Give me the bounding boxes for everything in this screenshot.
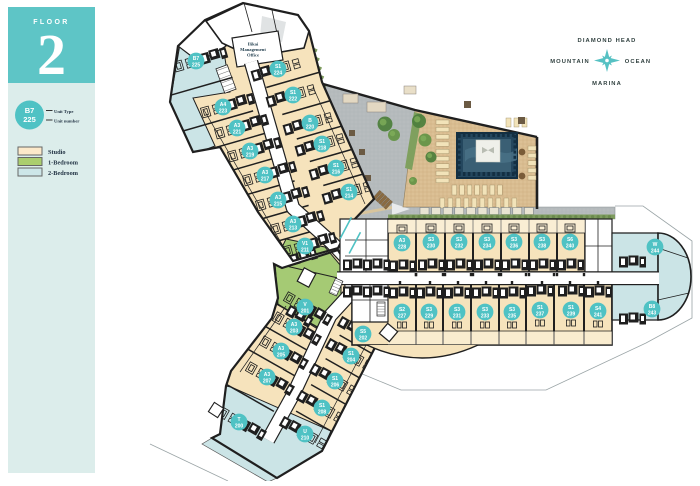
svg-text:210: 210 <box>301 435 310 441</box>
svg-text:S3: S3 <box>511 237 517 243</box>
svg-text:225: 225 <box>23 115 36 124</box>
svg-text:S2: S2 <box>399 307 405 313</box>
svg-text:B7: B7 <box>193 56 200 62</box>
svg-text:Management: Management <box>240 47 266 52</box>
svg-text:S3: S3 <box>428 237 434 243</box>
svg-text:S1: S1 <box>348 351 354 357</box>
svg-text:237: 237 <box>536 311 545 317</box>
svg-text:A3: A3 <box>275 195 282 201</box>
svg-text:S1: S1 <box>537 305 543 311</box>
svg-text:205: 205 <box>277 352 286 358</box>
svg-text:232: 232 <box>455 243 464 249</box>
svg-text:T: T <box>237 417 240 423</box>
svg-text:V1: V1 <box>302 241 308 247</box>
svg-text:A3: A3 <box>262 170 269 176</box>
svg-text:S3: S3 <box>482 307 488 313</box>
svg-text:S1: S1 <box>346 187 352 193</box>
svg-text:S3: S3 <box>426 307 432 313</box>
svg-text:Ilikai: Ilikai <box>248 42 259 47</box>
svg-text:A3: A3 <box>290 219 297 225</box>
svg-text:201: 201 <box>301 308 310 314</box>
svg-text:S1: S1 <box>290 90 296 96</box>
svg-text:S3: S3 <box>454 307 460 313</box>
svg-text:223: 223 <box>219 108 228 114</box>
svg-text:B8: B8 <box>649 304 656 310</box>
svg-text:A4: A4 <box>220 102 227 108</box>
svg-text:MARINA: MARINA <box>592 81 622 87</box>
svg-text:236: 236 <box>510 243 519 249</box>
svg-text:A3: A3 <box>291 322 298 328</box>
svg-text:A3: A3 <box>264 372 271 378</box>
svg-text:240: 240 <box>566 243 575 249</box>
svg-text:220: 220 <box>306 124 315 130</box>
svg-text:S1: S1 <box>332 376 338 382</box>
svg-text:211: 211 <box>301 247 309 253</box>
svg-text:238: 238 <box>538 243 547 249</box>
svg-text:231: 231 <box>453 313 462 319</box>
svg-text:241: 241 <box>594 312 603 318</box>
svg-text:S4: S4 <box>595 306 601 312</box>
svg-text:U: U <box>303 429 307 435</box>
svg-text:230: 230 <box>427 243 436 249</box>
svg-text:S1: S1 <box>319 139 325 145</box>
svg-text:A3: A3 <box>399 238 406 244</box>
svg-text:224: 224 <box>274 70 283 76</box>
svg-text:A3: A3 <box>234 123 241 129</box>
svg-text:213: 213 <box>289 225 298 231</box>
svg-text:W: W <box>653 242 658 248</box>
svg-text:S3: S3 <box>484 237 490 243</box>
svg-text:202: 202 <box>359 335 368 341</box>
svg-text:S1: S1 <box>333 163 339 169</box>
svg-text:MOUNTAIN: MOUNTAIN <box>550 59 590 65</box>
svg-text:225: 225 <box>192 62 201 68</box>
svg-text:1-Bedroom: 1-Bedroom <box>48 160 79 167</box>
svg-text:2: 2 <box>37 22 66 87</box>
svg-text:218: 218 <box>318 145 327 151</box>
svg-text:S3: S3 <box>509 307 515 313</box>
svg-text:222: 222 <box>289 96 298 102</box>
svg-text:234: 234 <box>483 243 492 249</box>
svg-text:B: B <box>308 118 312 124</box>
svg-text:208: 208 <box>318 409 327 415</box>
svg-text:229: 229 <box>425 313 434 319</box>
svg-text:204: 204 <box>347 357 356 363</box>
svg-text:S1: S1 <box>568 305 574 311</box>
svg-text:DIAMOND HEAD: DIAMOND HEAD <box>578 38 637 44</box>
svg-text:200: 200 <box>235 423 244 429</box>
svg-text:S3: S3 <box>539 237 545 243</box>
svg-text:233: 233 <box>481 313 490 319</box>
svg-text:216: 216 <box>332 169 341 175</box>
svg-text:243: 243 <box>648 310 657 316</box>
svg-text:S1: S1 <box>319 403 325 409</box>
svg-text:S5: S5 <box>360 329 366 335</box>
svg-text:215: 215 <box>274 201 283 207</box>
svg-text:S3: S3 <box>456 237 462 243</box>
svg-text:235: 235 <box>508 313 517 319</box>
svg-text:239: 239 <box>567 311 576 317</box>
svg-text:203: 203 <box>290 328 299 334</box>
svg-text:B7: B7 <box>25 106 35 115</box>
svg-text:Unit Type: Unit Type <box>54 109 73 114</box>
svg-text:244: 244 <box>651 248 660 254</box>
svg-text:A3: A3 <box>278 346 285 352</box>
svg-text:A3: A3 <box>247 146 254 152</box>
svg-text:S1: S1 <box>275 64 281 70</box>
svg-text:Unit number: Unit number <box>54 119 79 124</box>
svg-text:228: 228 <box>398 244 407 250</box>
svg-text:S6: S6 <box>567 237 573 243</box>
svg-text:Studio: Studio <box>48 149 66 156</box>
svg-text:OCEAN: OCEAN <box>625 59 651 65</box>
svg-text:219: 219 <box>246 152 255 158</box>
svg-text:227: 227 <box>398 313 407 319</box>
svg-text:217: 217 <box>261 176 270 182</box>
svg-text:206: 206 <box>331 382 340 388</box>
svg-text:207: 207 <box>263 378 272 384</box>
svg-text:221: 221 <box>233 129 242 135</box>
svg-text:Office: Office <box>247 53 259 58</box>
svg-text:214: 214 <box>345 193 354 199</box>
svg-text:2-Bedroom: 2-Bedroom <box>48 170 79 177</box>
